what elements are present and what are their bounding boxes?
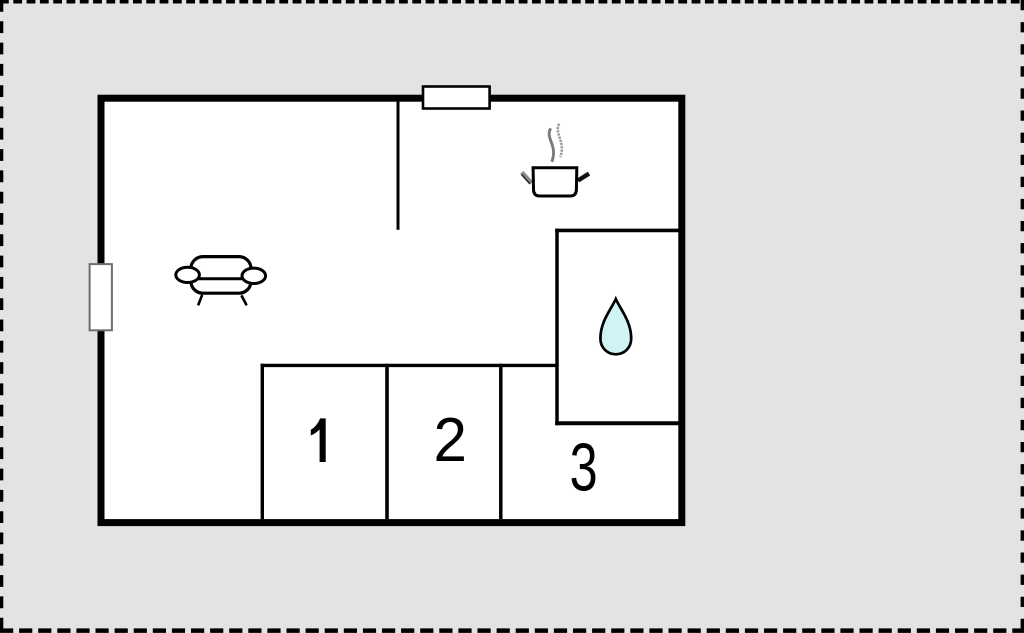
svg-text:3: 3 — [570, 429, 598, 505]
svg-text:2: 2 — [433, 405, 466, 474]
